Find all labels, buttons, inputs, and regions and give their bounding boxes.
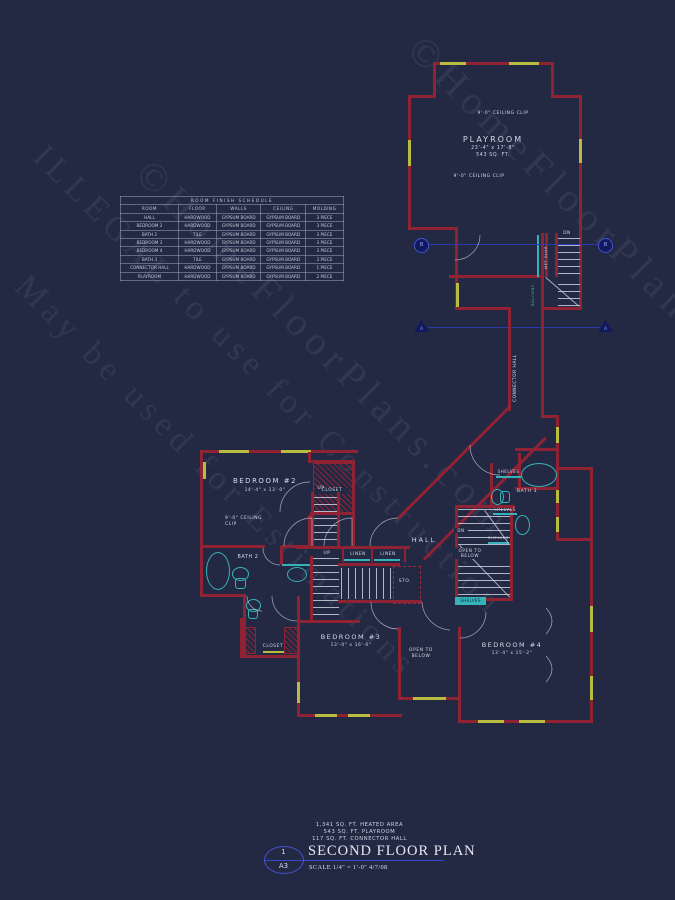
door-arc: [247, 596, 262, 611]
scale-label: SCALE 1/4" = 1'-0" 4/7/08: [309, 864, 469, 871]
door-arc: [324, 518, 352, 546]
drawing-title: SECOND FLOOR PLAN: [308, 843, 528, 860]
door-arc: [470, 445, 500, 475]
floor-plan-canvas: ©HomeFloorPlans.com ©HomeFloorPlans.com …: [0, 0, 675, 900]
door-arc: [280, 482, 310, 512]
door-arc: [546, 608, 552, 634]
door-arc: [370, 518, 398, 546]
door-arc: [546, 656, 552, 682]
door-arc: [455, 235, 480, 260]
door-arc: [284, 518, 312, 546]
door-arc: [371, 602, 398, 629]
area-stats: 1,341 SQ. FT. HEATED AREA 543 SQ. FT. PL…: [287, 822, 432, 844]
door-arc: [422, 602, 450, 630]
sheet-ref: A3: [264, 862, 303, 870]
door-arc: [460, 612, 486, 638]
door-arc: [263, 548, 280, 565]
sheet-number: 1: [264, 848, 303, 856]
door-arcs: [0, 0, 675, 900]
door-arc: [272, 596, 297, 621]
